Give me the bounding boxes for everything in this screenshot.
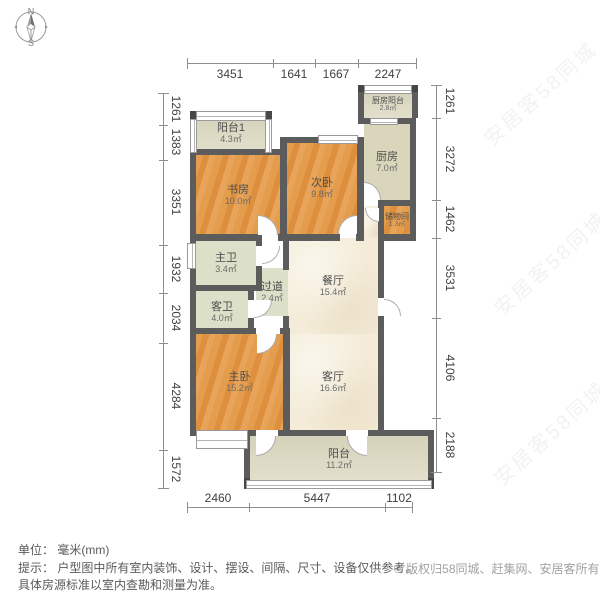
room-area: 4.0㎡ [211, 313, 233, 324]
wall-post [411, 85, 418, 92]
dim-bottom-3: 1102 [386, 491, 412, 505]
dim-left-2: 1383 [169, 129, 183, 156]
room-area: 15.2㎡ [226, 383, 253, 394]
room-name: 阳台 [328, 448, 350, 460]
dim-top-4: 2247 [375, 67, 402, 81]
room-name: 次卧 [311, 177, 333, 189]
dimension-line-bottom [187, 507, 413, 508]
wall-segment [357, 137, 364, 241]
dim-left-6: 4284 [169, 383, 183, 410]
wall-segment [283, 234, 289, 270]
dim-bottom-1: 2460 [205, 491, 232, 505]
room-name: 客卫 [211, 301, 233, 313]
dim-left-3: 3351 [169, 189, 183, 216]
bay-window-master-bedroom [196, 430, 248, 449]
wall-segment [256, 234, 262, 246]
window-balcony-rail [246, 480, 432, 489]
watermark-text: 安居客58同城 [487, 374, 600, 491]
dim-left-5: 2034 [169, 305, 183, 332]
wall-segment [190, 234, 258, 241]
room-master-bath: 主卫 3.4㎡ [196, 241, 256, 285]
wall-segment [280, 143, 287, 234]
wall-segment [190, 149, 196, 436]
dimension-line-top [187, 63, 417, 64]
compass-south-label: S [28, 38, 34, 48]
room-name: 储物间 [385, 212, 409, 221]
room-name: 阳台1 [217, 122, 245, 134]
footer-hint-line1: 提示： 户型图中所有室内装饰、设计、摆设、间隔、尺寸、设备仅供参考。 [18, 559, 417, 576]
watermark-text: 安居客58同城 [487, 204, 600, 321]
window-kitchen-balcony [364, 85, 412, 94]
compass-icon: N S [6, 2, 56, 52]
room-name: 过道 [261, 281, 283, 293]
room-name: 客厅 [322, 371, 344, 383]
compass-north-label: N [28, 7, 35, 17]
dim-left-7: 1572 [169, 456, 183, 483]
room-area: 4.3㎡ [220, 134, 242, 145]
window-balcony1-right [265, 119, 272, 153]
wall-segment [190, 328, 256, 334]
dimension-line-left [163, 93, 164, 488]
wall-segment [410, 118, 416, 241]
door-master-bath [262, 246, 280, 264]
room-kitchen-balcony: 厨房阳台 2.8㎡ [364, 91, 412, 118]
dim-right-2: 3272 [443, 146, 457, 173]
room-name: 主卧 [229, 371, 251, 383]
room-name: 厨房 [376, 151, 398, 163]
room-area: 15.4㎡ [320, 287, 347, 298]
dim-right-6: 2188 [443, 432, 457, 459]
room-name: 餐厅 [322, 275, 344, 287]
room-area: 16.6㎡ [320, 383, 347, 394]
room-name: 厨房阳台 [372, 96, 404, 105]
watermark-text: 安居客58同城 [477, 34, 600, 151]
dim-right-3: 1462 [443, 206, 457, 233]
dim-bottom-2: 5447 [304, 491, 331, 505]
floorplan-canvas: N S 安居客58同城 安居客58同城 安居客58同城 阳台1 4.3㎡ 书房 … [0, 0, 600, 600]
dim-left-1: 1261 [169, 96, 183, 123]
dim-right-5: 4106 [443, 355, 457, 382]
window-balcony1-left [190, 119, 197, 153]
room-storage: 储物间 1.3㎡ [384, 206, 410, 234]
footer-hint-line2: 具体房源标准以室内查勘和测量为准。 [18, 576, 222, 593]
dim-top-3: 1667 [323, 67, 350, 81]
room-area: 1.3㎡ [389, 221, 406, 229]
wall-segment [248, 318, 254, 334]
wall-segment [248, 285, 254, 300]
wall-segment [378, 238, 384, 298]
room-living: 客厅 16.6㎡ [288, 334, 378, 430]
room-name: 主卫 [215, 252, 237, 264]
dim-right-1: 1261 [443, 88, 457, 115]
door-entry [384, 299, 401, 316]
room-area: 3.4㎡ [215, 264, 237, 275]
wall-segment [283, 328, 290, 436]
room-area: 10.0㎡ [225, 196, 252, 207]
room-dining: 餐厅 15.4㎡ [288, 238, 378, 334]
dim-left-4: 1932 [169, 256, 183, 283]
wall-segment [428, 436, 434, 484]
dim-top-1: 3451 [217, 67, 244, 81]
window-second-bedroom [318, 135, 358, 144]
footer-unit-label: 单位： 毫米(mm) [18, 541, 109, 558]
window-kitchen [370, 118, 398, 125]
dim-top-2: 1641 [281, 67, 308, 81]
dim-right-4: 3531 [443, 265, 457, 292]
wall-segment [378, 316, 384, 436]
room-area: 11.2㎡ [326, 460, 352, 471]
room-area: 2.8㎡ [380, 105, 397, 113]
room-balcony: 阳台 11.2㎡ [250, 436, 428, 482]
room-area: 7.0㎡ [376, 163, 398, 174]
wall-segment [256, 266, 262, 291]
dimension-line-right [436, 85, 437, 472]
footer-copyright: © 版权归58同城、赶集网、安居客所有 [394, 560, 600, 577]
window-master-bath [187, 243, 196, 269]
room-name: 书房 [227, 184, 249, 196]
room-area: 9.8㎡ [311, 189, 333, 200]
window-balcony1-top [196, 111, 266, 121]
